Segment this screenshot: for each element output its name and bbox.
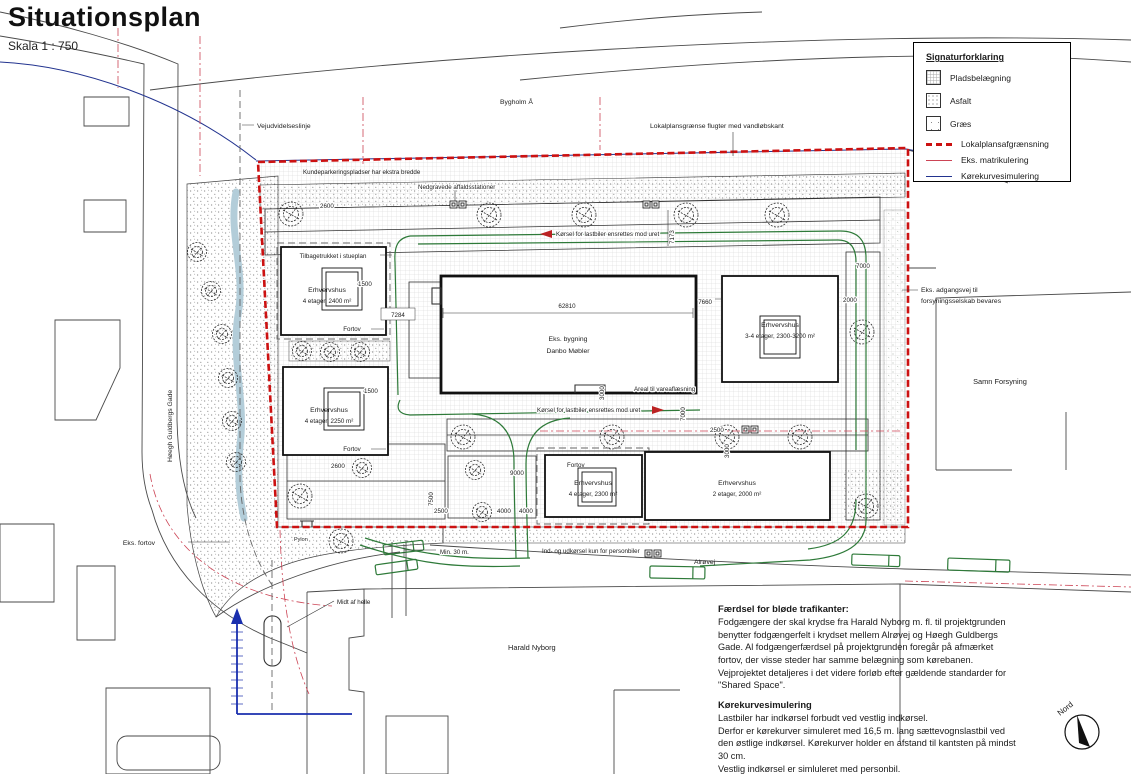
waste-station-icon bbox=[645, 550, 661, 557]
legend-title: Signaturforklaring bbox=[926, 52, 1060, 62]
road-alrovej-north-east bbox=[430, 545, 1131, 575]
compass-label: Nord bbox=[1056, 700, 1075, 718]
b5-name: Erhvervshus bbox=[718, 480, 756, 487]
lokalplan-line-icon bbox=[926, 143, 952, 146]
b1-detail: 4 etager, 2400 m² bbox=[303, 298, 352, 305]
dim-9000: 9000 bbox=[510, 470, 524, 477]
label-harald-nyborg: Harald Nyborg bbox=[508, 643, 556, 652]
neighbor-structure-oval bbox=[117, 736, 220, 770]
legend-item: Græs bbox=[926, 116, 1060, 131]
label-bygholm-aa: Bygholm Å bbox=[500, 97, 533, 106]
dim-7284: 7284 bbox=[391, 312, 405, 319]
legend-item-label: Græs bbox=[950, 119, 971, 129]
legend-item-label: Asfalt bbox=[950, 96, 971, 106]
b1-fortov: Fortov bbox=[343, 326, 361, 333]
notes-block: Færdsel for bløde trafikanter: Fodgænger… bbox=[718, 603, 1020, 774]
legend-item-label: Pladsbelægning bbox=[950, 73, 1011, 83]
label-min-30: Min. 30 m. bbox=[440, 549, 469, 556]
north-arrow: Nord bbox=[1056, 700, 1099, 749]
dim-4000-b: 4000 bbox=[519, 508, 533, 515]
label-pylon: Pylon bbox=[294, 537, 308, 543]
building-b3 bbox=[722, 276, 838, 382]
road-alrovej-south-east bbox=[900, 584, 1131, 592]
curve-note-body: Lastbiler har indkørsel forbudt ved vest… bbox=[718, 712, 1020, 774]
label-affaldsstationer: Nedgravede affaldsstationer bbox=[418, 184, 495, 191]
blue-curve-simulation bbox=[231, 608, 352, 714]
dim-1500-a: 1500 bbox=[358, 281, 372, 288]
dim-1500-b: 1500 bbox=[364, 388, 378, 395]
label-kundeparkering: Kundeparkeringspladser har ekstra bredde bbox=[303, 169, 421, 176]
b3-name: Erhvervshus bbox=[761, 322, 799, 329]
b4-detail: 4 etager, 2300 m² bbox=[569, 491, 618, 498]
legend-item: Pladsbelægning bbox=[926, 70, 1060, 85]
pladsbelaegning-swatch-icon bbox=[926, 70, 941, 85]
legend-item: Asfalt bbox=[926, 93, 1060, 108]
dim-2500-a: 2500 bbox=[434, 508, 448, 515]
label-vareaflaesning: Areal til vareaflæsning bbox=[634, 386, 696, 393]
matrikel-line-icon bbox=[926, 160, 952, 161]
vehicle-truck bbox=[375, 559, 418, 575]
label-lastbil-oneway-south: Kørsel for lastbiler ensrettes mod uret bbox=[537, 407, 640, 414]
label-personbiler: Ind- og udkørsel kun for personbiler bbox=[542, 548, 640, 555]
dim-7660: 7660 bbox=[698, 299, 712, 306]
label-tilbagetrukket: Tilbagetrukket i stueplan bbox=[300, 253, 367, 260]
label-vejudvidelseslinje: Vejudvidelseslinje bbox=[257, 123, 311, 130]
dim-62810: 62810 bbox=[558, 303, 576, 310]
legend-item-label: Lokalplansafgrænsning bbox=[961, 139, 1049, 149]
label-midt-af-helle: Midt af helle bbox=[337, 599, 371, 606]
legend-item-label: Kørekurvesimulering bbox=[961, 171, 1039, 181]
b3-detail: 3-4 etager, 2300-3200 m² bbox=[745, 333, 815, 340]
situationsplan-drawing: Bygholm Å Vejudvidelseslinje Lokalplansg… bbox=[0, 0, 1131, 774]
curve-note-heading: Kørekurvesimulering bbox=[718, 699, 1020, 712]
building-existing-danbo bbox=[441, 276, 696, 393]
vehicle-truck bbox=[650, 566, 705, 579]
label-adgangsvej-line1: Eks. adgangsvej til bbox=[921, 287, 978, 294]
existing-name: Eks. bygning bbox=[549, 336, 588, 343]
page-title: Situationsplan bbox=[8, 2, 201, 33]
dim-3000-a: 3000 bbox=[599, 386, 606, 400]
asfalt-swatch-icon bbox=[926, 93, 941, 108]
b2-fortov: Fortov bbox=[343, 446, 361, 453]
dim-2500-b: 2500 bbox=[710, 427, 724, 434]
b5-detail: 2 etager, 2000 m² bbox=[713, 491, 762, 498]
traffic-note-heading: Færdsel for bløde trafikanter: bbox=[718, 603, 1020, 616]
dim-4000-a: 4000 bbox=[497, 508, 511, 515]
river-bygholm-line3 bbox=[560, 12, 762, 28]
dim-2000: 2000 bbox=[843, 297, 857, 304]
b2-name: Erhvervshus bbox=[310, 407, 348, 414]
neighbor-buildings-west bbox=[55, 97, 129, 420]
dim-2600-b: 2600 bbox=[331, 463, 345, 470]
label-lastbil-oneway-north: Kørsel for lastbiler ensrettes mod uret bbox=[556, 231, 659, 238]
legend-item-label: Eks. matrikulering bbox=[961, 155, 1029, 165]
existing-detail: Danbo Møbler bbox=[546, 348, 590, 355]
legend-item: Kørekurvesimulering bbox=[926, 171, 1060, 181]
graes-swatch-icon bbox=[926, 116, 941, 131]
dim-7000-east: 7000 bbox=[856, 263, 870, 270]
b4-fortov: Fortov bbox=[567, 462, 585, 469]
hedge-band bbox=[289, 341, 390, 361]
label-adgangsvej-line2: forsyningsselskab bevares bbox=[921, 298, 1002, 305]
legend-item: Eks. matrikulering bbox=[926, 155, 1060, 165]
scale-label: Skala 1 : 750 bbox=[8, 39, 201, 53]
dim-7500: 7500 bbox=[428, 492, 435, 506]
legend-item: Lokalplansafgrænsning bbox=[926, 139, 1060, 149]
b1-name: Erhvervshus bbox=[308, 287, 346, 294]
dim-2600-a: 2600 bbox=[320, 203, 334, 210]
vehicle-truck bbox=[852, 554, 900, 567]
vehicle-truck bbox=[948, 558, 1010, 572]
label-lokalplan-flugter: Lokalplansgrænse flugter med vandløbskan… bbox=[650, 123, 784, 130]
label-samn-forsyning: Samn Forsyning bbox=[973, 377, 1027, 386]
b2-detail: 4 etager, 2250 m² bbox=[305, 418, 354, 425]
asfalt-patch-southeast bbox=[842, 470, 902, 522]
dim-7173: 7173 bbox=[669, 230, 676, 244]
label-eks-fortov: Eks. fortov bbox=[123, 540, 156, 547]
blue-path bbox=[237, 622, 352, 714]
dim-7000-vert: 7000 bbox=[680, 407, 687, 421]
dim-3000-b: 3000 bbox=[724, 444, 731, 458]
b4-name: Erhvervshus bbox=[574, 480, 612, 487]
neighbor-buildings-southwest bbox=[0, 524, 210, 774]
neighbor-structure-small bbox=[386, 716, 448, 774]
title-block: Situationsplan Skala 1 : 750 bbox=[8, 2, 201, 53]
blue-arrowhead-icon bbox=[231, 608, 243, 624]
label-alrovej: Alrøvej bbox=[694, 559, 716, 566]
label-hoegh-guldbergs-gade: Høegh Guldbergs Gade bbox=[167, 390, 174, 462]
traffic-note-body: Fodgængere der skal krydse fra Harald Ny… bbox=[718, 616, 1020, 692]
koerekurve-line-icon bbox=[926, 176, 952, 177]
legend-box: Signaturforklaring Pladsbelægning Asfalt… bbox=[913, 42, 1071, 182]
